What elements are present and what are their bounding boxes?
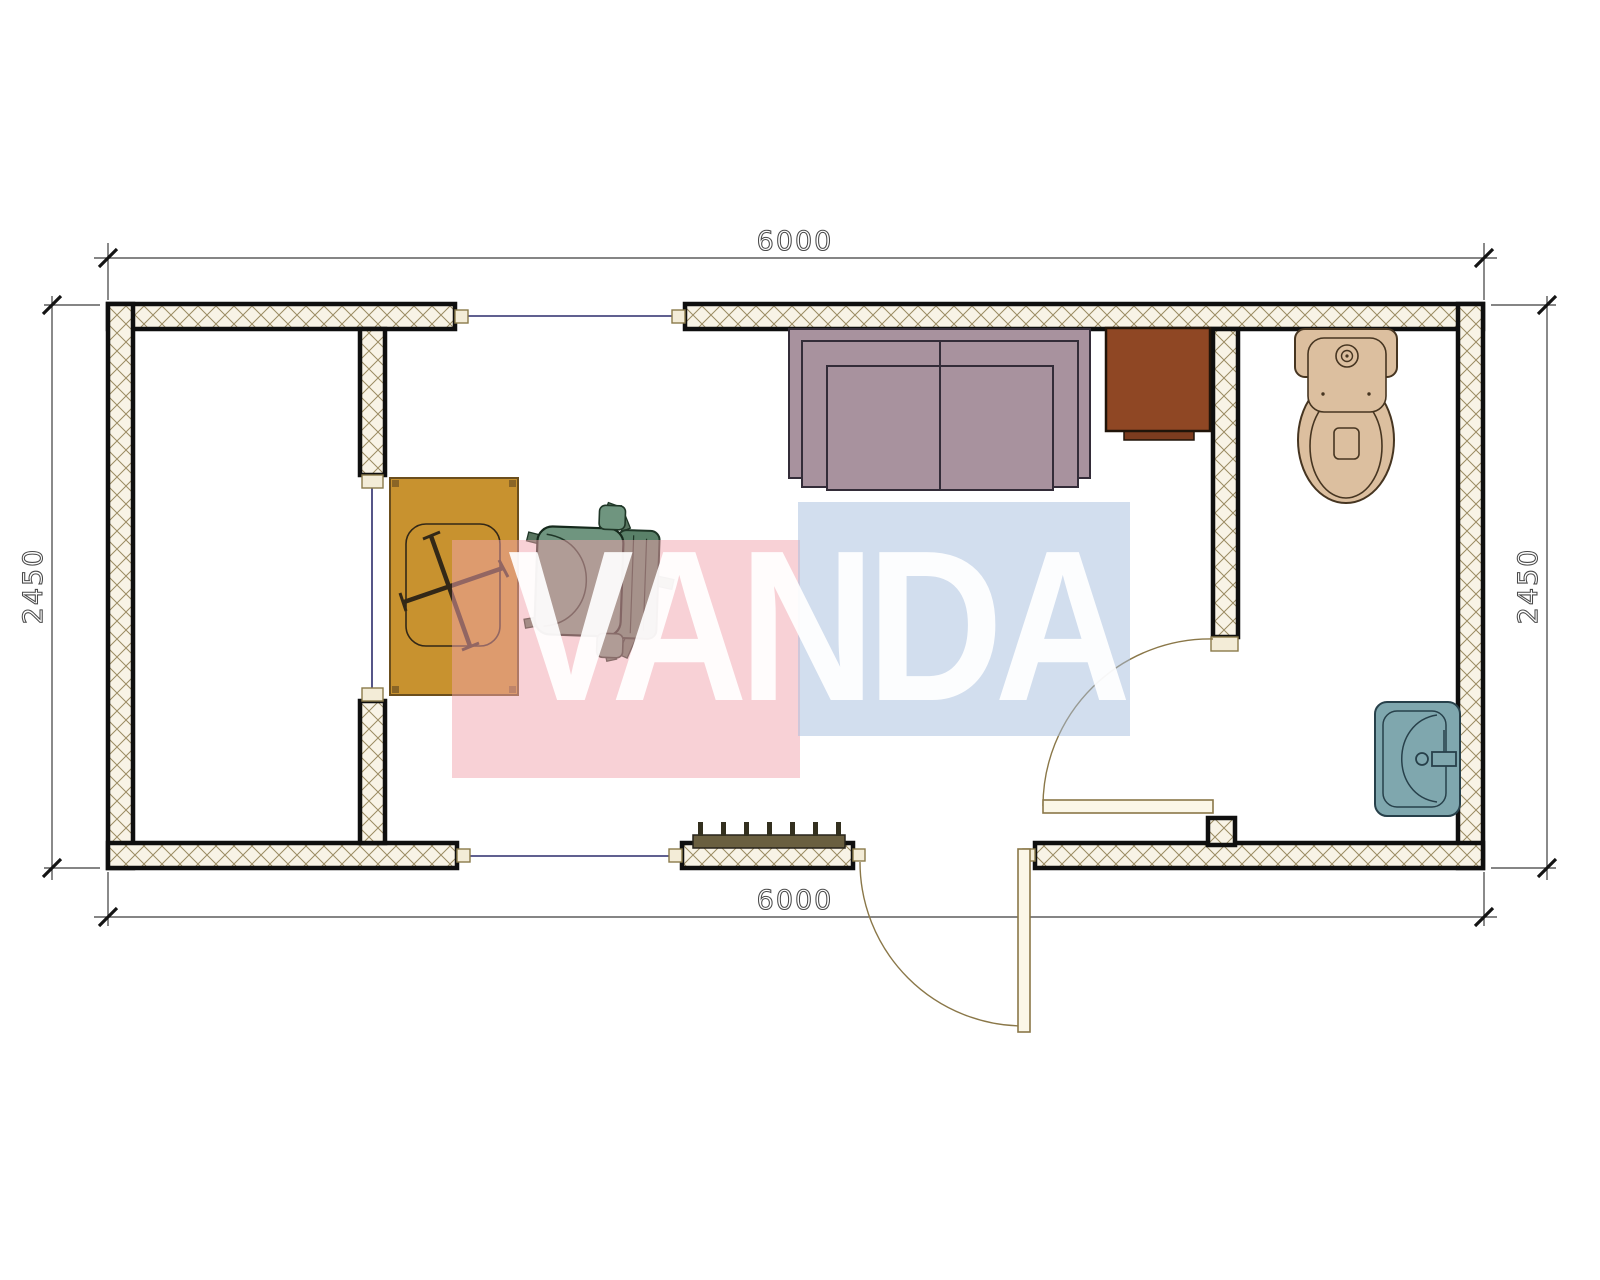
dimension-top: 6000 [94,226,1497,300]
wall-stub-bathroom-door [1208,818,1235,845]
wall-bottom-left [108,843,457,868]
dimension-bottom-label: 6000 [757,885,834,916]
cabinet-icon [1106,328,1210,440]
wall-right [1458,304,1483,868]
wall-left [108,304,133,868]
dimension-left-label: 2450 [18,548,49,625]
toilet-icon [1295,329,1397,503]
jamb-icon [455,310,468,323]
jamb-icon [362,688,383,701]
dimension-bottom: 6000 [94,872,1497,926]
bathroom-door-leaf [1043,800,1213,813]
partition-bathroom [1213,329,1238,637]
partition-left-upper [360,329,385,475]
sink-icon [1375,702,1460,816]
radiator-icon [693,822,845,848]
entrance-door-swing-arc [860,862,1024,1026]
entrance-door-leaf [1018,849,1030,1032]
watermark-text: VANDA [508,506,1127,746]
partition-left-lower [360,701,385,843]
watermark: VANDA [452,502,1130,778]
floor-plan-drawing: 6000 6000 2450 2450 [0,0,1600,1280]
dimension-right-label: 2450 [1513,548,1544,625]
wall-bottom-right [1035,843,1483,868]
jamb-icon [853,849,865,861]
jamb-icon [669,849,682,862]
floor-plan-page: 6000 6000 2450 2450 [0,0,1600,1280]
jamb-icon [672,310,685,323]
dimension-right: 2450 [1491,296,1556,880]
jamb-icon [362,475,383,488]
wall-top-left [108,304,455,329]
sofa-icon [789,329,1090,490]
dimension-left: 2450 [18,296,100,880]
dimension-top-label: 6000 [757,226,834,257]
jamb-icon [1211,637,1238,651]
jamb-icon [457,849,470,862]
wall-top-right [685,304,1483,329]
